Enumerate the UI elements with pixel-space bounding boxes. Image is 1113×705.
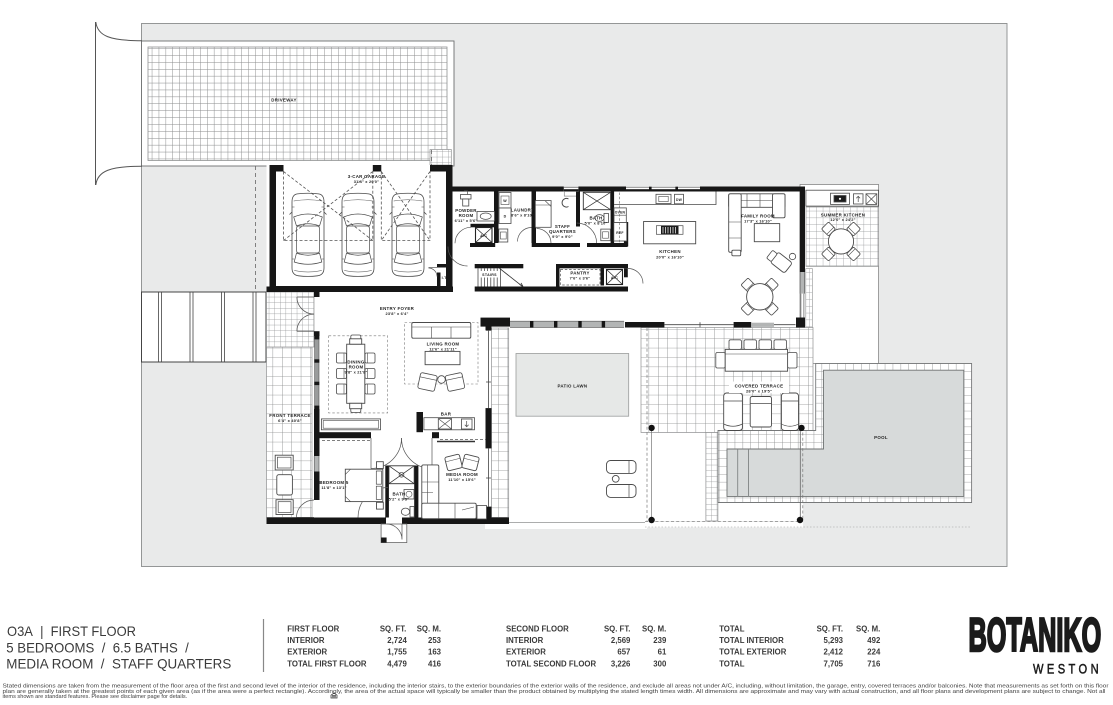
- svg-text:BOTANIKO: BOTANIKO: [969, 609, 1102, 661]
- svg-text:12'6" x 21'11": 12'6" x 21'11": [429, 347, 457, 352]
- svg-text:7'6" x 3'6": 7'6" x 3'6": [570, 276, 591, 281]
- svg-text:W: W: [503, 199, 507, 203]
- svg-text:PATIO LAWN: PATIO LAWN: [557, 384, 587, 389]
- svg-text:6'11" x 5'6": 6'11" x 5'6": [455, 218, 478, 223]
- svg-text:20'0" x 16'10": 20'0" x 16'10": [656, 255, 684, 260]
- svg-text:POOL: POOL: [874, 435, 888, 440]
- svg-text:REF: REF: [616, 231, 623, 235]
- svg-text:INTERIOR: INTERIOR: [506, 636, 544, 645]
- svg-text:TOTAL INTERIOR: TOTAL INTERIOR: [719, 636, 784, 645]
- svg-text:5'2" x 9'5": 5'2" x 9'5": [389, 497, 410, 502]
- svg-text:MEDIA ROOM / STAFF QUARTERS: MEDIA ROOM / STAFF QUARTERS: [6, 657, 231, 672]
- svg-text:WESTON: WESTON: [1033, 661, 1102, 676]
- svg-text:A/C: A/C: [480, 234, 487, 238]
- svg-text:61: 61: [658, 648, 667, 657]
- svg-text:5,293: 5,293: [823, 636, 843, 645]
- svg-text:BAR: BAR: [441, 412, 452, 417]
- svg-text:OVEN: OVEN: [615, 211, 626, 215]
- svg-text:5 BEDROOMS / 6.5 BATHS /: 5 BEDROOMS / 6.5 BATHS /: [6, 640, 189, 655]
- svg-text:416: 416: [428, 659, 442, 668]
- svg-text:2,569: 2,569: [611, 636, 631, 645]
- svg-text:D: D: [504, 215, 507, 219]
- svg-text:INTERIOR: INTERIOR: [287, 636, 325, 645]
- svg-text:6'4" x 40'8": 6'4" x 40'8": [278, 418, 302, 423]
- svg-text:TOTAL: TOTAL: [719, 659, 745, 668]
- svg-text:KITCHEN: KITCHEN: [659, 249, 681, 254]
- svg-text:EXTERIOR: EXTERIOR: [287, 648, 327, 657]
- svg-text:3,226: 3,226: [611, 659, 631, 668]
- svg-text:1,755: 1,755: [387, 648, 407, 657]
- svg-text:7,705: 7,705: [823, 659, 843, 668]
- svg-text:11'8" x 13'1": 11'8" x 13'1": [321, 485, 346, 490]
- svg-text:716: 716: [867, 659, 881, 668]
- svg-text:23'8" x 6'4": 23'8" x 6'4": [385, 311, 408, 316]
- svg-text:SQ. FT.: SQ. FT.: [380, 625, 406, 634]
- svg-text:SECOND FLOOR: SECOND FLOOR: [506, 625, 569, 634]
- svg-text:I.T.: I.T.: [442, 276, 448, 280]
- svg-text:STAIRS: STAIRS: [482, 273, 497, 277]
- svg-text:28'0" x 19'5": 28'0" x 19'5": [746, 388, 772, 393]
- svg-text:EXTERIOR: EXTERIOR: [506, 648, 546, 657]
- svg-text:items shown are standard featu: items shown are standard features. Pleas…: [3, 694, 188, 700]
- svg-text:TOTAL EXTERIOR: TOTAL EXTERIOR: [719, 648, 787, 657]
- svg-text:SQ. FT.: SQ. FT.: [604, 625, 630, 634]
- svg-text:SQ. M.: SQ. M.: [417, 625, 441, 634]
- svg-text:8'6" x 8'10": 8'6" x 8'10": [511, 213, 534, 218]
- svg-text:5'0" x 8'10": 5'0" x 8'10": [584, 221, 607, 226]
- svg-text:239: 239: [653, 636, 667, 645]
- svg-text:TOTAL: TOTAL: [719, 625, 745, 634]
- svg-text:O3A | FIRST FLOOR: O3A | FIRST FLOOR: [7, 624, 136, 639]
- svg-text:657: 657: [617, 648, 630, 657]
- svg-text:2,412: 2,412: [823, 648, 843, 657]
- svg-text:12'0" x 24'2": 12'0" x 24'2": [830, 217, 855, 222]
- svg-text:TOTAL FIRST FLOOR: TOTAL FIRST FLOOR: [287, 659, 367, 668]
- svg-text:DW: DW: [676, 198, 683, 202]
- svg-text:224: 224: [867, 648, 881, 657]
- svg-text:9'8" x 21'8": 9'8" x 21'8": [344, 370, 367, 375]
- svg-text:163: 163: [428, 648, 442, 657]
- svg-text:11'10" x 15'6": 11'10" x 15'6": [448, 477, 476, 482]
- svg-text:253: 253: [428, 636, 442, 645]
- svg-text:TOTAL SECOND FLOOR: TOTAL SECOND FLOOR: [506, 659, 596, 668]
- svg-text:SQ. M.: SQ. M.: [856, 625, 880, 634]
- svg-text:9'0" x 9'0": 9'0" x 9'0": [552, 234, 573, 239]
- svg-text:SQ. M.: SQ. M.: [642, 625, 666, 634]
- svg-text:300: 300: [653, 659, 667, 668]
- svg-text:31'4" x 20'0": 31'4" x 20'0": [354, 179, 379, 184]
- svg-text:A/C: A/C: [611, 276, 618, 280]
- svg-text:2,724: 2,724: [387, 636, 407, 645]
- svg-text:FIRST FLOOR: FIRST FLOOR: [287, 625, 339, 634]
- svg-text:17'3" x 16'10": 17'3" x 16'10": [744, 219, 772, 224]
- svg-text:DRIVEWAY: DRIVEWAY: [271, 98, 296, 103]
- svg-text:492: 492: [867, 636, 881, 645]
- svg-text:4,479: 4,479: [387, 659, 407, 668]
- svg-text:SQ. FT.: SQ. FT.: [817, 625, 843, 634]
